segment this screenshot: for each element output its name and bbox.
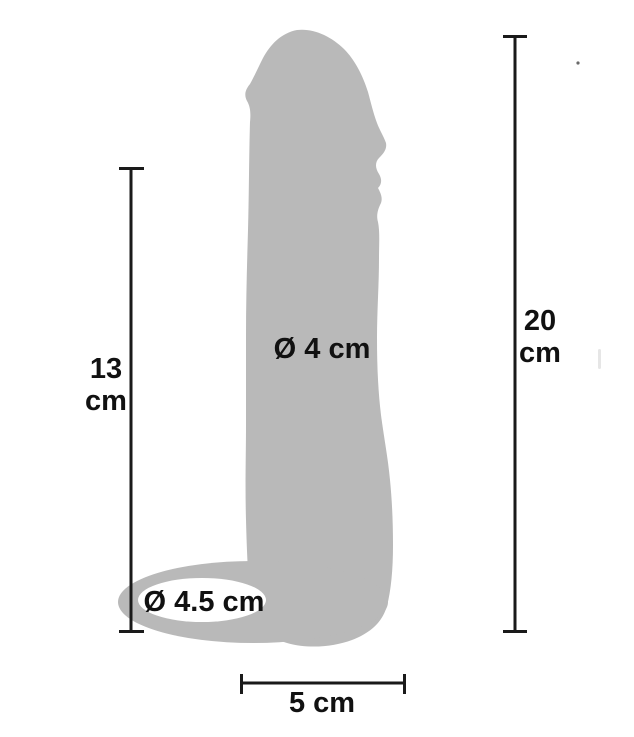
faint-smudge-artifact <box>598 349 601 369</box>
total-length-value: 20 <box>500 305 580 337</box>
base-width-value: 5 cm <box>289 687 355 719</box>
label-ring-diameter: Ø 4.5 cm <box>124 586 284 618</box>
shaft-diameter-value: Ø 4 cm <box>274 333 371 365</box>
label-inner-length: 13 cm <box>66 353 146 417</box>
label-shaft-diameter: Ø 4 cm <box>242 333 402 365</box>
inner-length-unit: cm <box>66 385 146 417</box>
speck-artifact <box>576 61 579 64</box>
total-length-unit: cm <box>500 337 580 369</box>
label-base-width: 5 cm <box>242 687 402 719</box>
ring-diameter-value: Ø 4.5 cm <box>144 586 265 618</box>
diagram-canvas: 13 cm 20 cm Ø 4 cm Ø 4.5 cm 5 cm <box>0 0 634 737</box>
inner-length-value: 13 <box>66 353 146 385</box>
label-total-length: 20 cm <box>500 305 580 369</box>
